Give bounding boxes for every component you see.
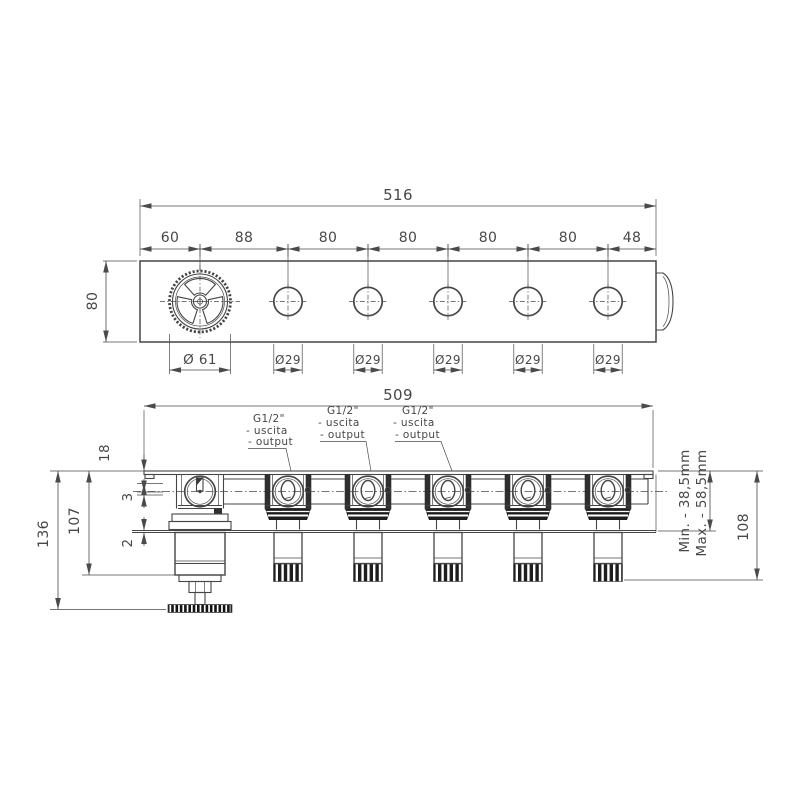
dim-d29-label-1: Ø29 bbox=[275, 353, 301, 367]
outlet-uscita-label: - uscita bbox=[318, 417, 360, 429]
dim-seg-80c: 80 bbox=[479, 230, 498, 246]
leader-line bbox=[395, 442, 452, 472]
outlet-size-label: G1/2" bbox=[253, 413, 285, 425]
wall-plate bbox=[50, 471, 653, 479]
dim-wheel-diameter: Ø 61 bbox=[170, 334, 231, 374]
dim-segments: 60 88 80 80 80 80 48 bbox=[140, 230, 656, 257]
outlet-output-label: - output bbox=[248, 436, 293, 448]
dim-136-label: 136 bbox=[36, 520, 52, 548]
lower-plate bbox=[132, 531, 656, 533]
valve-unit-5 bbox=[585, 475, 631, 582]
dim-d29-label-2: Ø29 bbox=[355, 353, 381, 367]
outlet-label-3: G1/2" - uscita - output bbox=[393, 405, 452, 471]
outlet-label-2: G1/2" - uscita - output bbox=[318, 405, 371, 471]
pipe-section-first bbox=[224, 479, 266, 504]
outlet-uscita-label: - uscita bbox=[393, 417, 435, 429]
dim-seg-80b: 80 bbox=[399, 230, 418, 246]
outlet-output-label: - output bbox=[320, 429, 365, 441]
bracket-block bbox=[214, 509, 222, 515]
dim-509-label: 509 bbox=[383, 386, 413, 404]
technical-drawing-canvas: 516 60 88 80 80 80 80 48 bbox=[0, 0, 800, 800]
dim-d29-label-5: Ø29 bbox=[595, 353, 621, 367]
min-depth-label: Min. - 38,5mm bbox=[677, 449, 693, 552]
dim-d29-label-4: Ø29 bbox=[515, 353, 541, 367]
valve-unit-2 bbox=[345, 475, 391, 582]
outlet-label-1: G1/2" - uscita - output bbox=[246, 413, 293, 471]
outlet-size-label: G1/2" bbox=[402, 405, 434, 417]
valve-unit-4 bbox=[505, 475, 551, 582]
dim-3-label: 3 bbox=[120, 493, 136, 502]
outlet-output-label: - output bbox=[395, 429, 440, 441]
handwheel bbox=[160, 244, 240, 338]
top-view: 516 60 88 80 80 80 80 48 bbox=[85, 186, 673, 374]
dim-height-80: 80 bbox=[85, 261, 137, 342]
dim-108-label: 108 bbox=[736, 513, 752, 541]
dim-80-label: 80 bbox=[85, 292, 101, 311]
dim-seg-80a: 80 bbox=[319, 230, 338, 246]
dim-d29-label-3: Ø29 bbox=[435, 353, 461, 367]
dim-d61-label: Ø 61 bbox=[183, 352, 217, 368]
dim-2-label: 2 bbox=[120, 539, 136, 548]
dim-seg-48: 48 bbox=[623, 230, 642, 246]
outlet-size-label: G1/2" bbox=[327, 405, 359, 417]
max-depth-label: Max. - 58,5mm bbox=[694, 449, 710, 556]
end-cap bbox=[656, 273, 673, 330]
dim-516-label: 516 bbox=[383, 186, 413, 204]
thermostat-unit bbox=[168, 475, 232, 613]
dim-seg-88: 88 bbox=[235, 230, 254, 246]
front-view: 509 G1/2" - uscita - output G1/2" - usci… bbox=[36, 386, 763, 613]
valve-unit-3 bbox=[425, 475, 471, 582]
dim-seg-60: 60 bbox=[161, 230, 180, 246]
dim-18-label: 18 bbox=[97, 444, 113, 462]
leader-line bbox=[248, 449, 291, 472]
dim-body-depth-107: 107 bbox=[67, 471, 177, 575]
valve-unit-1 bbox=[265, 475, 311, 582]
leader-line bbox=[320, 442, 371, 472]
dim-seg-80d: 80 bbox=[559, 230, 578, 246]
indicator-wedge bbox=[197, 478, 204, 486]
dim-107-label: 107 bbox=[67, 507, 83, 535]
